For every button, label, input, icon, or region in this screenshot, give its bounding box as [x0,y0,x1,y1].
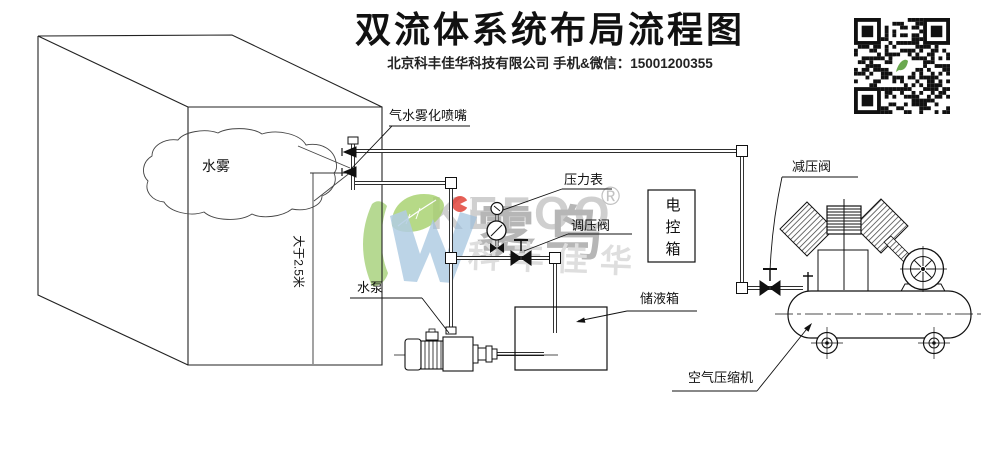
spray-cone [298,146,351,201]
mist-cloud [143,129,351,220]
cylinder-left [780,202,834,256]
label-water-mist: 水雾 [202,159,230,174]
label-height-note: 大于2.5米 [291,231,304,293]
air-compressor [775,199,985,359]
label-regulating-valve: 调压阀 [571,219,610,233]
arrowhead [576,317,585,322]
crankcase [818,250,868,291]
watermark-logo [363,194,477,286]
reducing-valve [760,269,780,295]
label-air-compressor: 空气压缩机 [688,371,753,385]
receiver-tank [788,291,971,338]
label-water-pump: 水泵 [357,281,383,295]
label-atomizing-nozzle: 气水雾化喷嘴 [389,109,467,123]
room-box [38,35,382,365]
label-reducing-valve: 减压阀 [792,160,831,174]
water-pump [394,327,558,371]
label-pressure-gauge: 压力表 [564,173,603,187]
logo-w-mark [390,210,477,283]
page-subtitle: 北京科丰佳华科技有限公司 手机&微信：15001200355 [290,57,810,72]
diagram-page: KEFOO 雾鸟 ® 科丰佳华 [0,0,992,460]
height-measure-line [310,173,351,364]
storage-tank [515,307,607,370]
logo-leaf-blade [363,201,388,286]
label-control-box: 电控箱 [663,197,680,263]
label-storage-tank: 储液箱 [640,292,679,306]
tank-inlet-stub [803,272,813,291]
regulating-valve [511,240,531,265]
qr-code [854,18,950,114]
page-title: 双流体系统布局流程图 [300,10,800,50]
